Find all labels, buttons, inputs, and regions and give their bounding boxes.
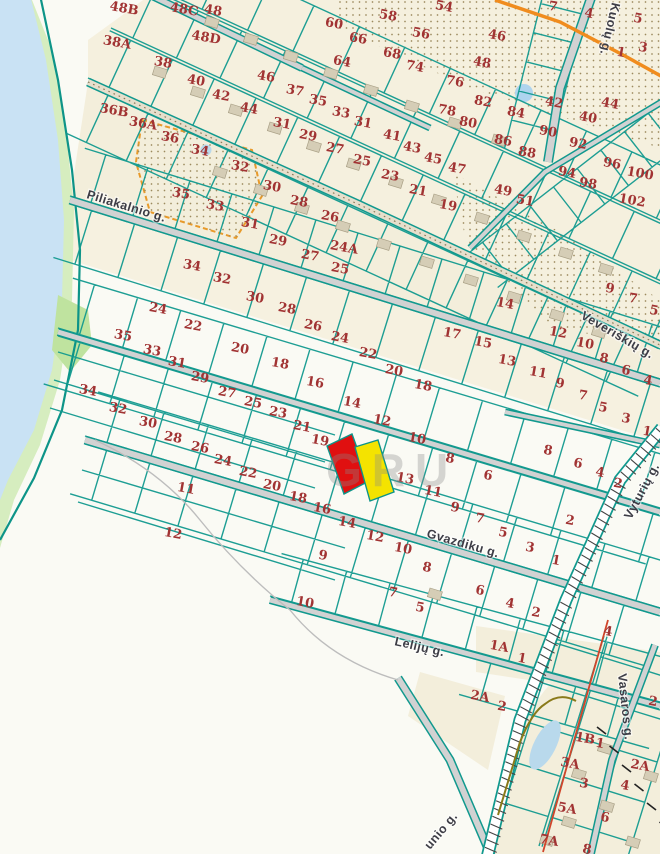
parcel-number-label: 40 (186, 72, 206, 90)
parcel-number-label: 98 (578, 175, 598, 193)
parcel-number-label: 42 (544, 94, 564, 112)
cadastral-map-viewport[interactable]: Piliakalnio g.Gvazdiku g.Lelijų g.Veveri… (0, 0, 660, 854)
parcel-number-label: 33 (142, 342, 162, 360)
parcel-number-label: 14 (495, 295, 515, 313)
parcel-number-label: 18 (270, 355, 290, 373)
parcel-number-label: 56 (411, 25, 431, 43)
parcel-number-label: 11 (176, 480, 196, 498)
parcel-number-label: 20 (230, 340, 250, 358)
parcel-number-label: 31 (167, 354, 187, 372)
cadastral-map-svg[interactable]: Piliakalnio g.Gvazdiku g.Lelijų g.Veveri… (0, 0, 660, 854)
parcel-number-label: 8 (581, 842, 593, 854)
parcel-number-label: 32 (108, 400, 128, 418)
parcel-number-label: 24 (330, 329, 350, 347)
parcel-number-label: 38 (153, 54, 173, 72)
parcel-number-label: 12 (365, 528, 385, 546)
parcel-number-label: 96 (602, 155, 622, 173)
parcel-number-label: 43 (402, 139, 422, 157)
parcel-number-label: 30 (262, 178, 282, 196)
parcel-number-label: 35 (308, 92, 328, 110)
parcel-number-label: 12 (372, 412, 392, 430)
parcel-number-label: 78 (437, 102, 457, 120)
parcel-number-label: 66 (348, 30, 368, 48)
parcel-number-label: 47 (447, 160, 467, 178)
parcel-number-label: 33 (205, 197, 225, 215)
parcel-number-label: 10 (575, 335, 595, 353)
parcel-number-label: 94 (557, 164, 577, 182)
parcel-number-label: 32 (230, 158, 250, 176)
parcel-number-label: 33 (331, 104, 351, 122)
parcel-number-label: 25 (330, 260, 350, 278)
parcel-number-label: 24 (148, 300, 168, 318)
parcel-number-label: 14 (342, 394, 362, 412)
parcel-number-label: 27 (325, 140, 345, 158)
parcel-number-label: 86 (493, 132, 513, 150)
parcel-number-label: 44 (239, 100, 259, 118)
parcel-number-label: 30 (138, 414, 158, 432)
parcel-number-label: 18 (288, 489, 308, 507)
parcel-number-label: 12 (548, 324, 568, 342)
parcel-number-label: 28 (277, 300, 297, 318)
parcel-number-label: 27 (300, 247, 320, 265)
parcel-number-label: 26 (303, 317, 323, 335)
parcel-number-label: 51 (515, 192, 535, 210)
parcel-number-label: 64 (332, 53, 352, 71)
parcel-number-label: 88 (517, 144, 537, 162)
parcel-number-label: 48 (203, 2, 223, 20)
parcel-number-label: 74 (405, 58, 425, 76)
parcel-number-label: 21 (292, 418, 312, 436)
parcel-number-label: 23 (380, 167, 400, 185)
parcel-number-label: 58 (378, 7, 398, 25)
parcel-number-label: 25 (243, 394, 263, 412)
parcel-number-label: 12 (163, 525, 183, 543)
parcel-number-label: 22 (183, 317, 203, 335)
parcel-number-label: 22 (238, 464, 258, 482)
parcel-number-label: 42 (211, 87, 231, 105)
parcel-number-label: 82 (473, 93, 493, 111)
parcel-number-label: 68 (382, 45, 402, 63)
watermark-text: GRU (326, 444, 458, 496)
parcel-number-label: 16 (312, 500, 332, 518)
parcel-number-label: 22 (358, 345, 378, 363)
parcel-number-label: 60 (324, 15, 344, 33)
parcel-number-label: 32 (212, 270, 232, 288)
parcel-number-label: 48 (472, 54, 492, 72)
parcel-number-label: 36 (160, 129, 180, 147)
parcel-number-label: 35 (113, 327, 133, 345)
parcel-number-label: 45 (423, 150, 443, 168)
parcel-number-label: 46 (256, 68, 276, 86)
parcel-number-label: 29 (268, 232, 288, 250)
parcel-number-label: 30 (245, 289, 265, 307)
parcel-number-label: 34 (182, 257, 202, 275)
parcel-number-label: 37 (285, 82, 305, 100)
parcel-number-label: 41 (382, 127, 402, 145)
parcel-number-label: 16 (305, 374, 325, 392)
parcel-number-label: 28 (163, 429, 183, 447)
parcel-number-label: 49 (493, 182, 513, 200)
parcel-number-label: 13 (497, 352, 517, 370)
parcel-number-label: 10 (393, 540, 413, 558)
parcel-number-label: 40 (578, 109, 598, 127)
parcel-number-label: 90 (538, 123, 558, 141)
parcel-number-label: 21 (408, 182, 428, 200)
parcel-number-label: 26 (190, 439, 210, 457)
parcel-number-label: 10 (295, 594, 315, 612)
parcel-number-label: 20 (384, 362, 404, 380)
parcel-number-label: 19 (438, 197, 458, 215)
parcel-number-label: 11 (528, 364, 548, 382)
parcel-number-label: 27 (217, 384, 237, 402)
parcel-number-label: 34 (190, 142, 210, 160)
parcel-number-label: 34 (78, 382, 98, 400)
parcel-number-label: 26 (320, 208, 340, 226)
parcel-number-label: 44 (600, 95, 620, 113)
parcel-number-label: 80 (458, 114, 478, 132)
parcel-number-label: 24 (213, 452, 233, 470)
parcel-number-label: 18 (413, 377, 433, 395)
parcel-number-label: 92 (568, 135, 588, 153)
parcel-number-label: 17 (442, 325, 462, 343)
parcel-number-label: 76 (445, 73, 465, 91)
parcel-number-label: 14 (337, 514, 357, 532)
parcel-number-label: 15 (473, 334, 493, 352)
parcel-number-label: 35 (171, 185, 191, 203)
parcel-number-label: 31 (353, 114, 373, 132)
parcel-number-label: 20 (262, 477, 282, 495)
parcel-number-label: 31 (272, 115, 292, 133)
parcel-number-label: 31 (240, 215, 260, 233)
parcel-number-label: 29 (298, 127, 318, 145)
parcel-number-label: 84 (506, 104, 526, 122)
parcel-number-label: 46 (487, 27, 507, 45)
parcel-number-label: 23 (268, 404, 288, 422)
parcel-number-label: 25 (352, 152, 372, 170)
parcel-number-label: 29 (190, 369, 210, 387)
parcel-number-label: 28 (289, 193, 309, 211)
